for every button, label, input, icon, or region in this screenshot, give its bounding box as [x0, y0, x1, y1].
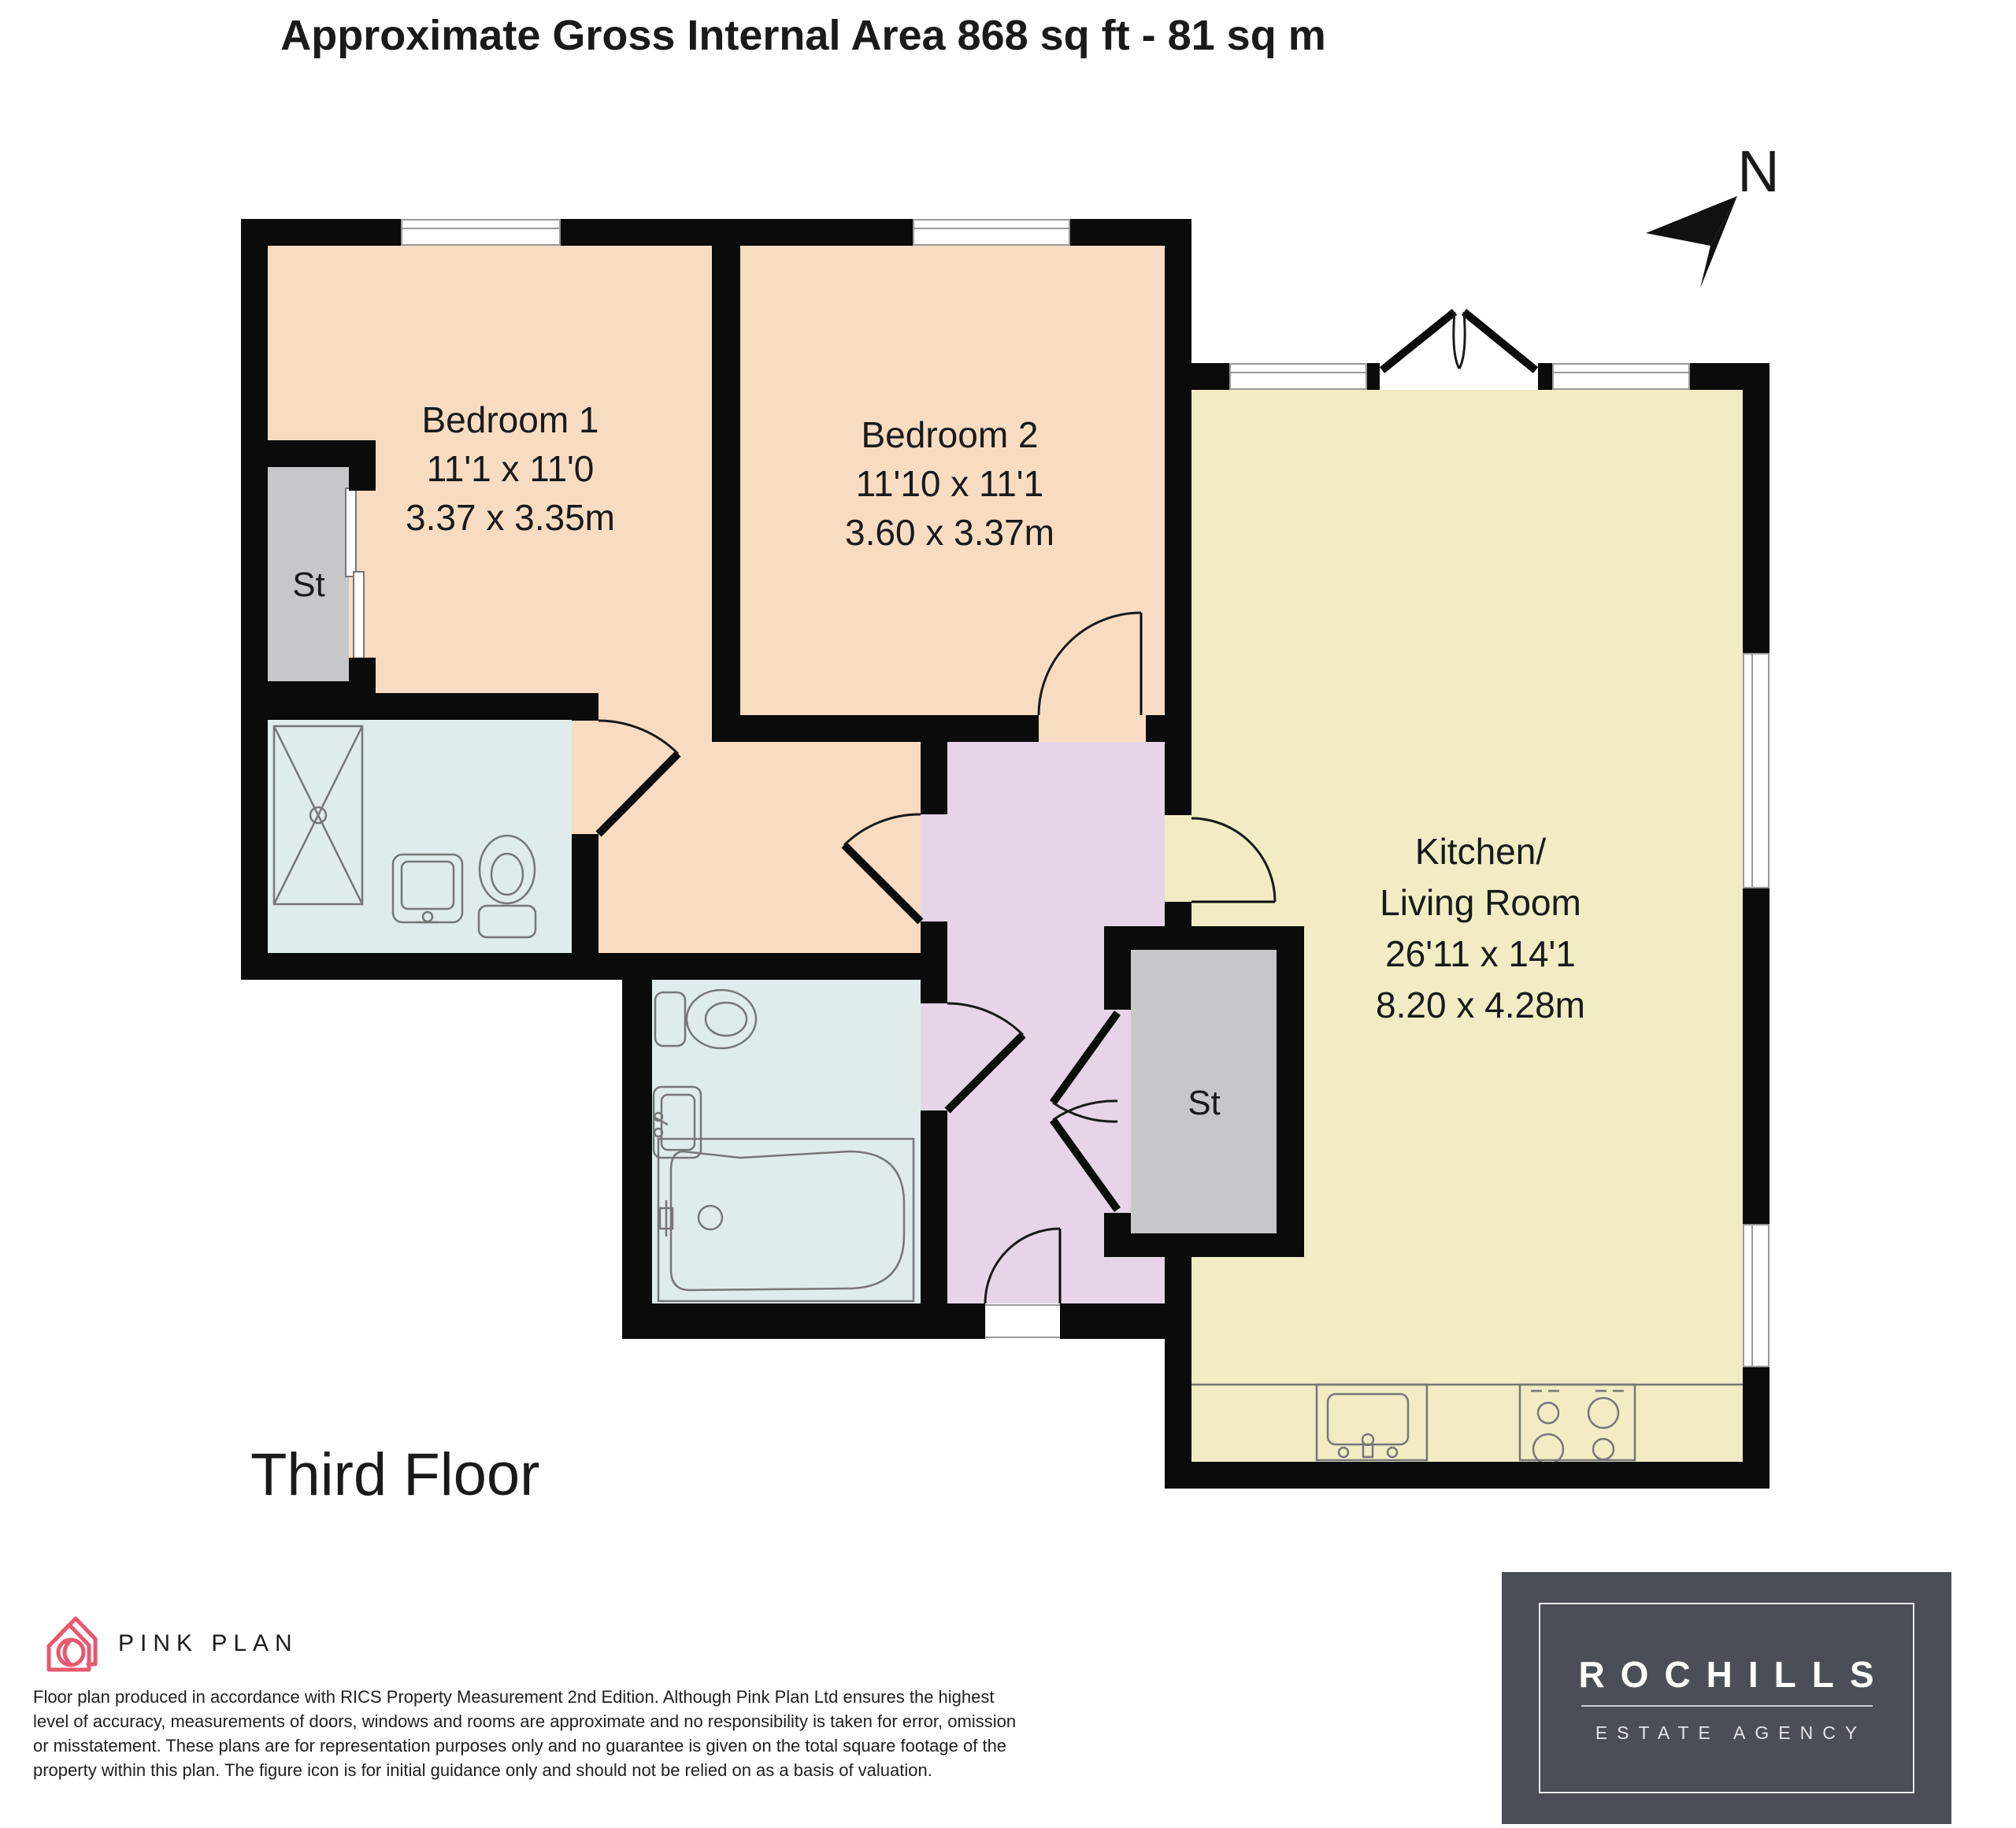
disclaimer-line: level of accuracy, measurements of doors… [33, 1711, 1016, 1731]
kitchen-name-label-line1: Kitchen/ [1415, 831, 1546, 872]
ensuite-floor [268, 720, 572, 953]
north-arrow-icon: N [1646, 139, 1780, 288]
disclaimer-line: or misstatement. These plans are for rep… [33, 1736, 1006, 1756]
bedroom1-dims-imperial: 11'1 x 11'0 [427, 448, 595, 489]
bedroom2-name-label: Bedroom 2 [861, 414, 1038, 455]
window [1230, 364, 1366, 389]
floor-label: Third Floor [250, 1441, 539, 1508]
kitchen-floor [1191, 390, 1743, 1462]
bedroom1-dims-metric: 3.37 x 3.35m [406, 497, 615, 538]
bedroom2-dims-imperial: 11'10 x 11'1 [856, 463, 1043, 504]
storage2-label: St [1188, 1084, 1221, 1122]
floorplan-svg: Approximate Gross Internal Area 868 sq f… [0, 0, 2016, 1828]
kitchen-door-threshold [1165, 815, 1191, 902]
window [1553, 364, 1689, 389]
floorplan-page: Approximate Gross Internal Area 868 sq f… [0, 0, 2016, 1828]
window [1744, 654, 1769, 888]
kitchen-dims-imperial: 26'11 x 14'1 [1385, 933, 1576, 974]
north-label: N [1737, 139, 1779, 204]
agency-tagline: ESTATE AGENCY [1595, 1722, 1866, 1743]
window [1744, 1225, 1769, 1366]
pink-plan-house-icon [49, 1619, 95, 1670]
hall-corridor-threshold [921, 814, 947, 921]
rochills-logo: ROCHILLS ESTATE AGENCY [1502, 1572, 1951, 1824]
page-title: Approximate Gross Internal Area 868 sq f… [280, 12, 1325, 59]
storage1-label: St [292, 565, 325, 604]
kitchen-name-label-line2: Living Room [1380, 882, 1581, 923]
french-doors [1382, 312, 1536, 370]
agency-name: ROCHILLS [1578, 1654, 1889, 1695]
pink-plan-brand: PINK PLAN [118, 1630, 298, 1656]
bathroom-door-threshold [921, 1003, 947, 1111]
window [913, 220, 1069, 245]
window [402, 220, 560, 245]
rochills-logo-background [1502, 1572, 1951, 1824]
pink-plan-logo: PINK PLAN [49, 1619, 298, 1670]
disclaimer-line: Floor plan produced in accordance with R… [33, 1687, 994, 1707]
bedroom2-door-threshold [1039, 715, 1146, 742]
storage2-door-threshold [1104, 1010, 1131, 1213]
entry-threshold [985, 1303, 1060, 1339]
bathroom-floor [652, 980, 921, 1303]
bedroom2-dims-metric: 3.60 x 3.37m [845, 512, 1054, 553]
disclaimer-line: property within this plan. The figure ic… [33, 1760, 932, 1780]
disclaimer: Floor plan produced in accordance with R… [33, 1687, 1016, 1780]
ensuite-door-threshold [572, 721, 598, 834]
bedroom1-name-label: Bedroom 1 [421, 399, 598, 440]
kitchen-dims-metric: 8.20 x 4.28m [1376, 984, 1585, 1025]
